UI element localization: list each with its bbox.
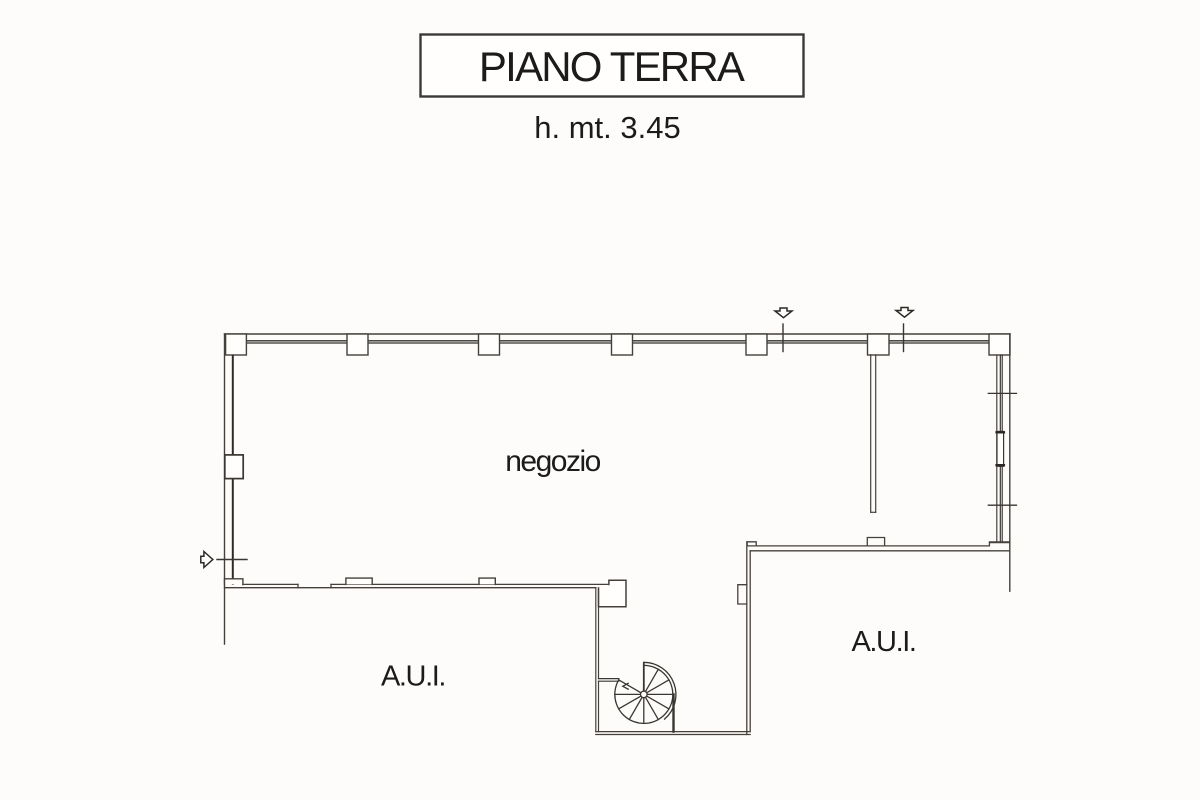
svg-text:A.U.I.: A.U.I.	[381, 661, 445, 693]
svg-text:A.U.I.: A.U.I.	[851, 626, 915, 658]
svg-text:h. mt. 3.45: h. mt. 3.45	[534, 110, 680, 145]
svg-text:PIANO TERRA: PIANO TERRA	[479, 43, 745, 90]
svg-text:negozio: negozio	[505, 445, 600, 478]
